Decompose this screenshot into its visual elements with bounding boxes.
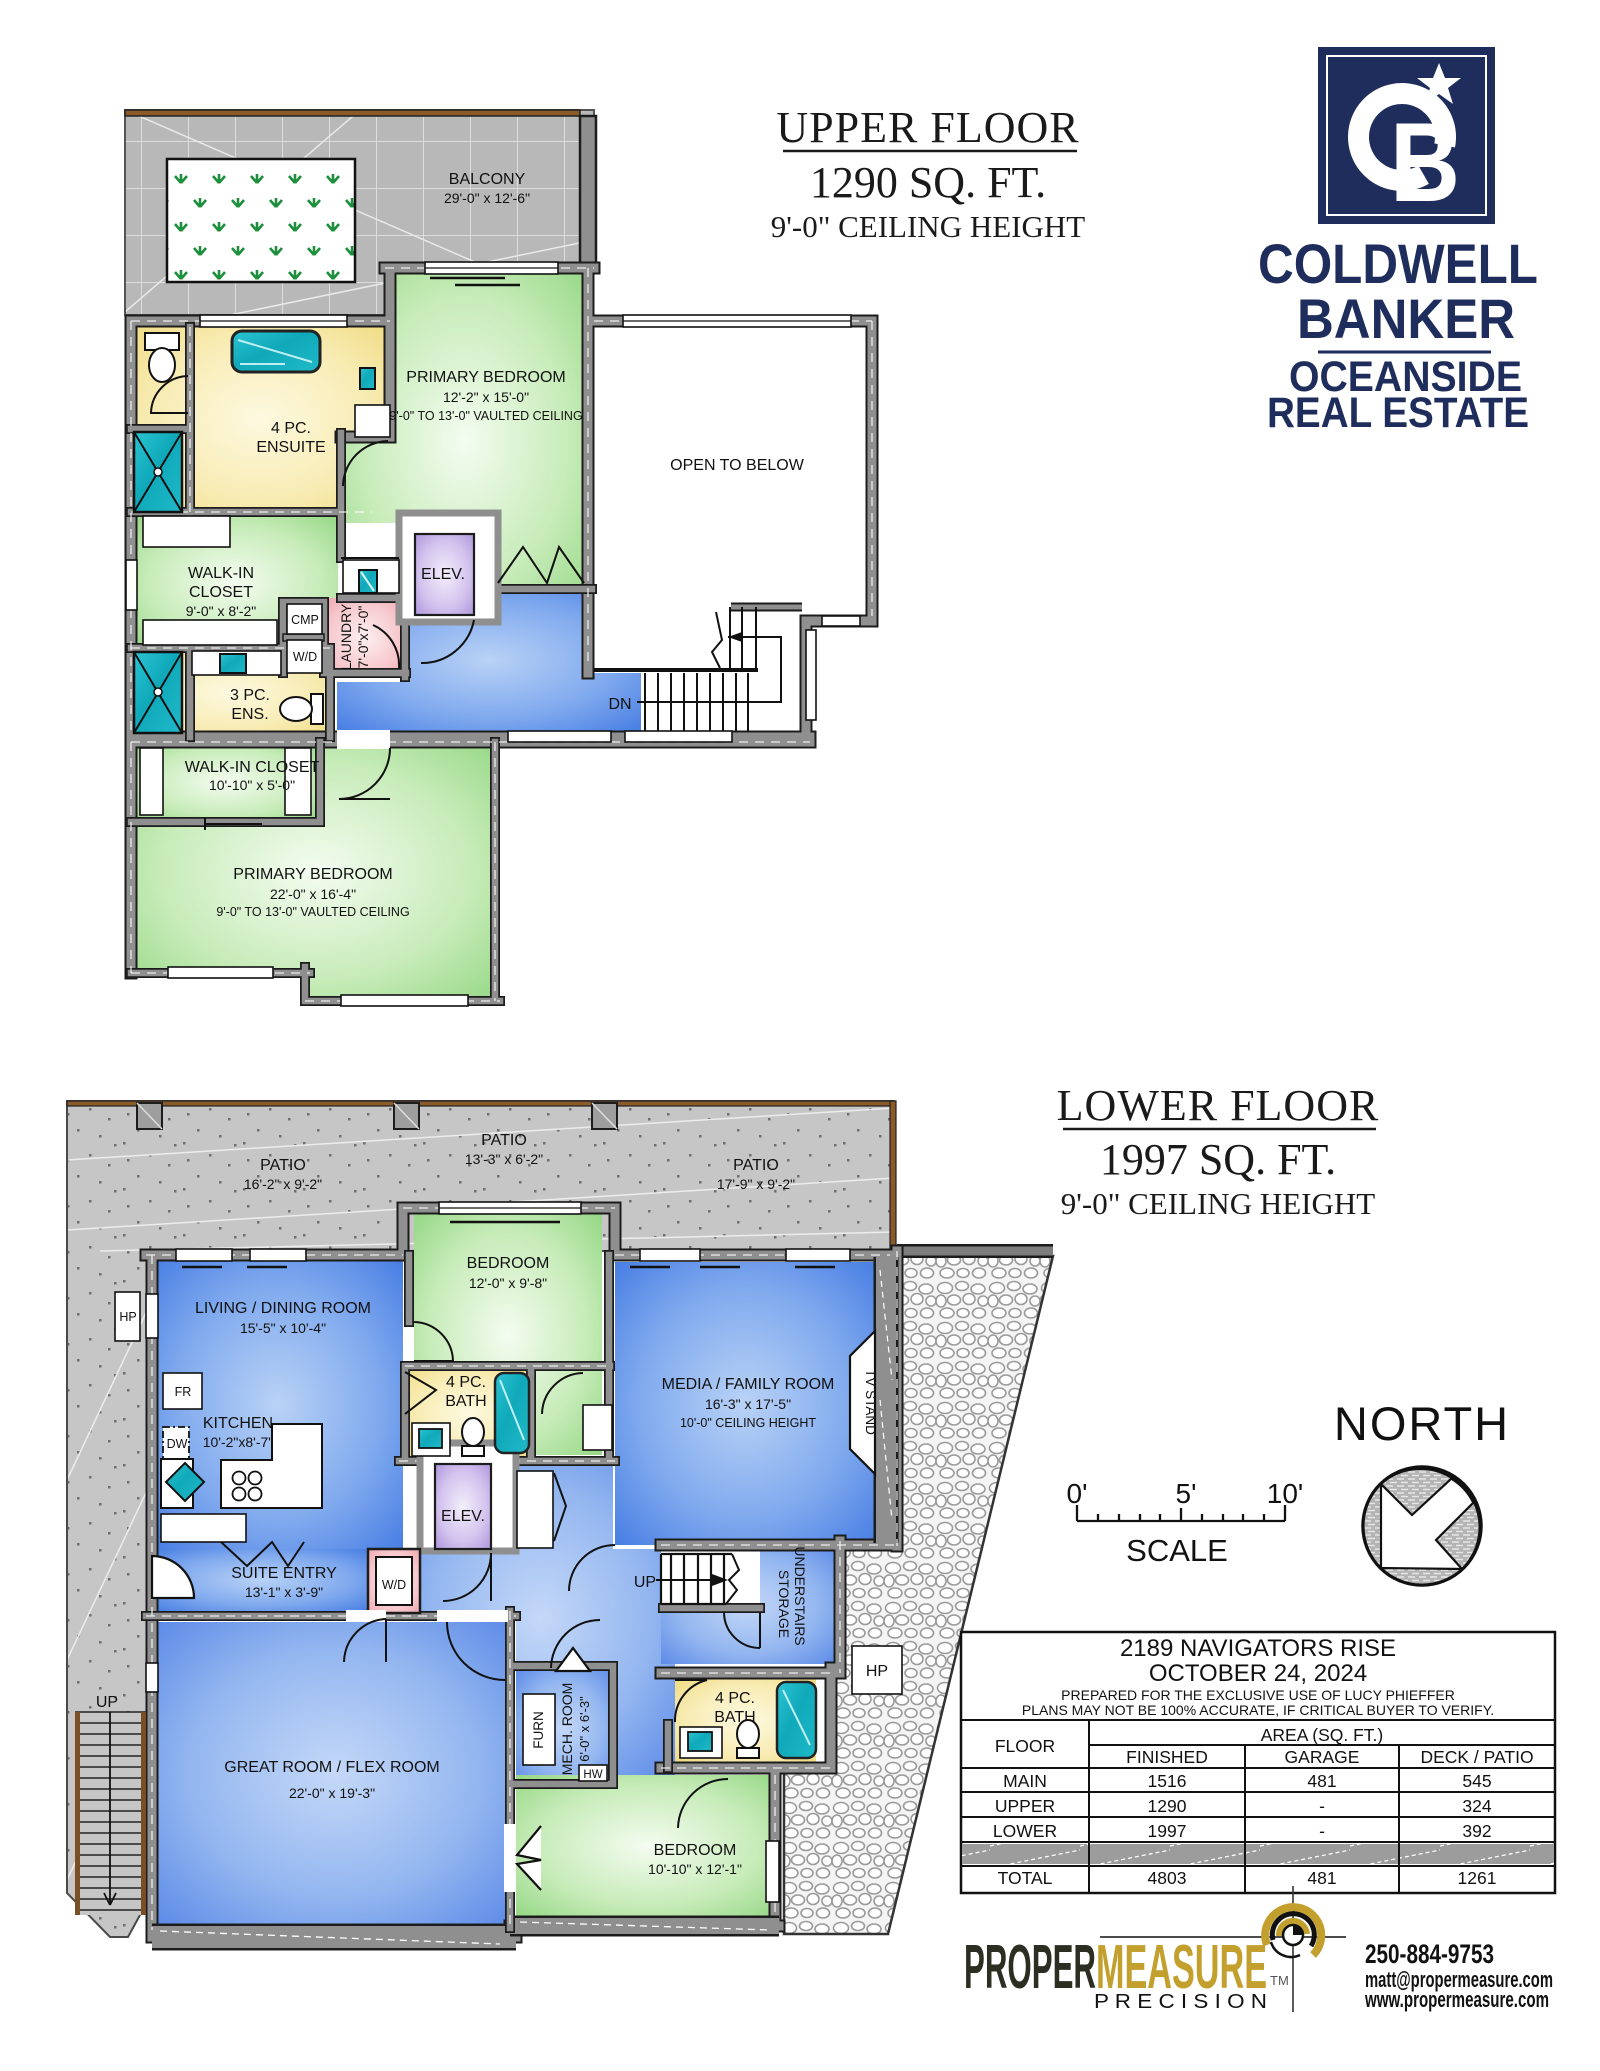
- svg-text:SUITE ENTRY: SUITE ENTRY: [231, 1565, 337, 1582]
- svg-text:BEDROOM: BEDROOM: [467, 1255, 550, 1272]
- svg-text:TM: TM: [1270, 1973, 1289, 1988]
- svg-text:W/D: W/D: [293, 650, 317, 664]
- svg-text:3 PC.: 3 PC.: [230, 687, 270, 704]
- svg-text:ENS.: ENS.: [231, 706, 268, 723]
- svg-text:10': 10': [1267, 1478, 1304, 1509]
- svg-text:UP: UP: [96, 1694, 118, 1711]
- svg-text:10'-10" x 5'-0": 10'-10" x 5'-0": [209, 777, 295, 793]
- svg-text:GARAGE: GARAGE: [1285, 1747, 1360, 1767]
- svg-text:TOTAL: TOTAL: [998, 1868, 1053, 1888]
- svg-text:13'-1" x 3'-9": 13'-1" x 3'-9": [245, 1584, 323, 1600]
- svg-text:4 PC.: 4 PC.: [271, 420, 311, 437]
- svg-text:UNDERSTAIRS: UNDERSTAIRS: [792, 1546, 808, 1645]
- svg-text:9'-0" TO 13'-0" VAULTED CEILIN: 9'-0" TO 13'-0" VAULTED CEILING: [216, 905, 409, 919]
- svg-text:GREAT ROOM / FLEX ROOM: GREAT ROOM / FLEX ROOM: [224, 1759, 439, 1776]
- svg-text:1997: 1997: [1148, 1821, 1187, 1841]
- svg-text:BATH: BATH: [445, 1393, 486, 1410]
- svg-text:FLOOR: FLOOR: [995, 1736, 1055, 1756]
- svg-text:4 PC.: 4 PC.: [446, 1374, 486, 1391]
- svg-text:CLOSET: CLOSET: [189, 584, 253, 601]
- svg-text:22'-0" x 16'-4": 22'-0" x 16'-4": [270, 886, 356, 902]
- svg-text:9'-0" TO 13'-0" VAULTED CEILIN: 9'-0" TO 13'-0" VAULTED CEILING: [389, 409, 582, 423]
- svg-text:16'-2" x 9'-2": 16'-2" x 9'-2": [244, 1176, 322, 1192]
- svg-text:HP: HP: [866, 1663, 888, 1680]
- svg-text:MAIN: MAIN: [1003, 1771, 1047, 1791]
- svg-text:545: 545: [1462, 1771, 1491, 1791]
- svg-text:15'-5" x 10'-4": 15'-5" x 10'-4": [240, 1320, 326, 1336]
- svg-text:481: 481: [1307, 1771, 1336, 1791]
- svg-text:DW: DW: [167, 1437, 188, 1451]
- svg-text:LOWER: LOWER: [993, 1821, 1057, 1841]
- svg-text:KITCHEN: KITCHEN: [203, 1415, 273, 1432]
- svg-text:250-884-9753: 250-884-9753: [1365, 1939, 1494, 1969]
- svg-text:16'-3" x 17'-5": 16'-3" x 17'-5": [705, 1396, 791, 1412]
- svg-text:BEDROOM: BEDROOM: [654, 1842, 737, 1859]
- svg-text:324: 324: [1462, 1796, 1491, 1816]
- svg-text:10'-10" x 12'-1": 10'-10" x 12'-1": [648, 1861, 742, 1877]
- svg-text:P R E C I S I O N: P R E C I S I O N: [1094, 1991, 1267, 2013]
- svg-text:5': 5': [1176, 1478, 1197, 1509]
- svg-text:UPPER FLOOR: UPPER FLOOR: [776, 103, 1079, 152]
- svg-text:BANKER: BANKER: [1297, 287, 1515, 350]
- svg-text:PATIO: PATIO: [481, 1132, 527, 1149]
- svg-text:FR: FR: [175, 1385, 192, 1399]
- svg-text:WALK-IN: WALK-IN: [188, 565, 254, 582]
- svg-text:UP: UP: [634, 1574, 656, 1591]
- svg-text:22'-0" x 19'-3": 22'-0" x 19'-3": [289, 1785, 375, 1801]
- svg-text:REAL ESTATE: REAL ESTATE: [1267, 389, 1529, 437]
- svg-text:OPEN TO BELOW: OPEN TO BELOW: [670, 457, 805, 474]
- svg-text:-: -: [1319, 1821, 1325, 1841]
- svg-text:2189 NAVIGATORS RISE: 2189 NAVIGATORS RISE: [1120, 1635, 1396, 1662]
- svg-text:NORTH: NORTH: [1334, 1397, 1510, 1450]
- svg-text:ELEV.: ELEV.: [421, 566, 465, 583]
- svg-text:1290 SQ. FT.: 1290 SQ. FT.: [810, 158, 1046, 207]
- svg-text:13'-3" x 6'-2": 13'-3" x 6'-2": [465, 1151, 543, 1167]
- svg-text:AREA (SQ. FT.): AREA (SQ. FT.): [1261, 1725, 1384, 1745]
- svg-text:PRIMARY BEDROOM: PRIMARY BEDROOM: [233, 866, 392, 883]
- svg-text:COLDWELL: COLDWELL: [1258, 232, 1538, 295]
- svg-text:17'-9" x 9'-2": 17'-9" x 9'-2": [717, 1176, 795, 1192]
- svg-text:HW: HW: [583, 1769, 602, 1781]
- svg-text:PATIO: PATIO: [733, 1157, 779, 1174]
- svg-text:7'-0"x7'-0": 7'-0"x7'-0": [355, 606, 371, 669]
- svg-text:DN: DN: [608, 696, 631, 713]
- svg-text:-: -: [1319, 1796, 1325, 1816]
- svg-text:10'-0" CEILING HEIGHT: 10'-0" CEILING HEIGHT: [680, 1416, 816, 1430]
- svg-text:0': 0': [1067, 1478, 1088, 1509]
- svg-text:PROPER: PROPER: [964, 1933, 1096, 2002]
- svg-text:B: B: [1390, 100, 1460, 225]
- svg-text:W/D: W/D: [382, 1578, 406, 1592]
- svg-text:9'-0" CEILING HEIGHT: 9'-0" CEILING HEIGHT: [1061, 1186, 1375, 1221]
- svg-text:TV STAND: TV STAND: [863, 1369, 878, 1435]
- svg-text:1261: 1261: [1458, 1868, 1497, 1888]
- svg-text:www.propermeasure.com: www.propermeasure.com: [1364, 1987, 1549, 2012]
- svg-text:UPPER: UPPER: [995, 1796, 1055, 1816]
- svg-text:6'-0" x 6'-3": 6'-0" x 6'-3": [577, 1696, 592, 1762]
- svg-text:1516: 1516: [1148, 1771, 1187, 1791]
- svg-text:DECK / PATIO: DECK / PATIO: [1420, 1747, 1533, 1767]
- svg-text:STORAGE: STORAGE: [776, 1570, 792, 1638]
- svg-text:CMP: CMP: [291, 613, 319, 627]
- svg-text:4 PC.: 4 PC.: [715, 1690, 755, 1707]
- svg-text:12'-2" x 15'-0": 12'-2" x 15'-0": [443, 389, 529, 405]
- svg-text:LOWER FLOOR: LOWER FLOOR: [1057, 1081, 1380, 1130]
- svg-text:12'-0" x 9'-8": 12'-0" x 9'-8": [469, 1275, 547, 1291]
- svg-text:BALCONY: BALCONY: [449, 171, 526, 188]
- svg-text:9'-0" CEILING HEIGHT: 9'-0" CEILING HEIGHT: [771, 209, 1085, 244]
- svg-text:SCALE: SCALE: [1126, 1533, 1228, 1568]
- svg-text:LIVING / DINING ROOM: LIVING / DINING ROOM: [195, 1300, 371, 1317]
- svg-text:29'-0" x 12'-6": 29'-0" x 12'-6": [444, 190, 530, 206]
- svg-text:ENSUITE: ENSUITE: [256, 439, 325, 456]
- svg-text:LAUNDRY: LAUNDRY: [338, 603, 354, 670]
- svg-text:481: 481: [1307, 1868, 1336, 1888]
- svg-text:FURN: FURN: [531, 1711, 546, 1749]
- svg-text:392: 392: [1462, 1821, 1491, 1841]
- svg-text:FINISHED: FINISHED: [1126, 1747, 1208, 1767]
- svg-text:PLANS MAY NOT BE 100% ACCURATE: PLANS MAY NOT BE 100% ACCURATE, IF CRITI…: [1022, 1702, 1494, 1718]
- svg-text:4803: 4803: [1148, 1868, 1187, 1888]
- svg-text:PRIMARY BEDROOM: PRIMARY BEDROOM: [406, 369, 565, 386]
- svg-text:OCTOBER 24, 2024: OCTOBER 24, 2024: [1149, 1660, 1367, 1687]
- svg-text:1290: 1290: [1148, 1796, 1187, 1816]
- svg-text:9'-0" x 8'-2": 9'-0" x 8'-2": [186, 603, 257, 619]
- svg-text:PREPARED FOR THE EXCLUSIVE USE: PREPARED FOR THE EXCLUSIVE USE OF LUCY P…: [1061, 1687, 1455, 1703]
- svg-text:PATIO: PATIO: [260, 1157, 306, 1174]
- svg-text:10'-2"x8'-7": 10'-2"x8'-7": [203, 1434, 274, 1450]
- svg-text:MEDIA / FAMILY ROOM: MEDIA / FAMILY ROOM: [662, 1376, 835, 1393]
- svg-text:ELEV.: ELEV.: [441, 1508, 485, 1525]
- svg-text:HP: HP: [119, 1310, 136, 1324]
- svg-text:WALK-IN CLOSET: WALK-IN CLOSET: [185, 759, 320, 776]
- svg-text:1997 SQ. FT.: 1997 SQ. FT.: [1100, 1135, 1336, 1184]
- svg-text:MECH. ROOM: MECH. ROOM: [559, 1683, 575, 1776]
